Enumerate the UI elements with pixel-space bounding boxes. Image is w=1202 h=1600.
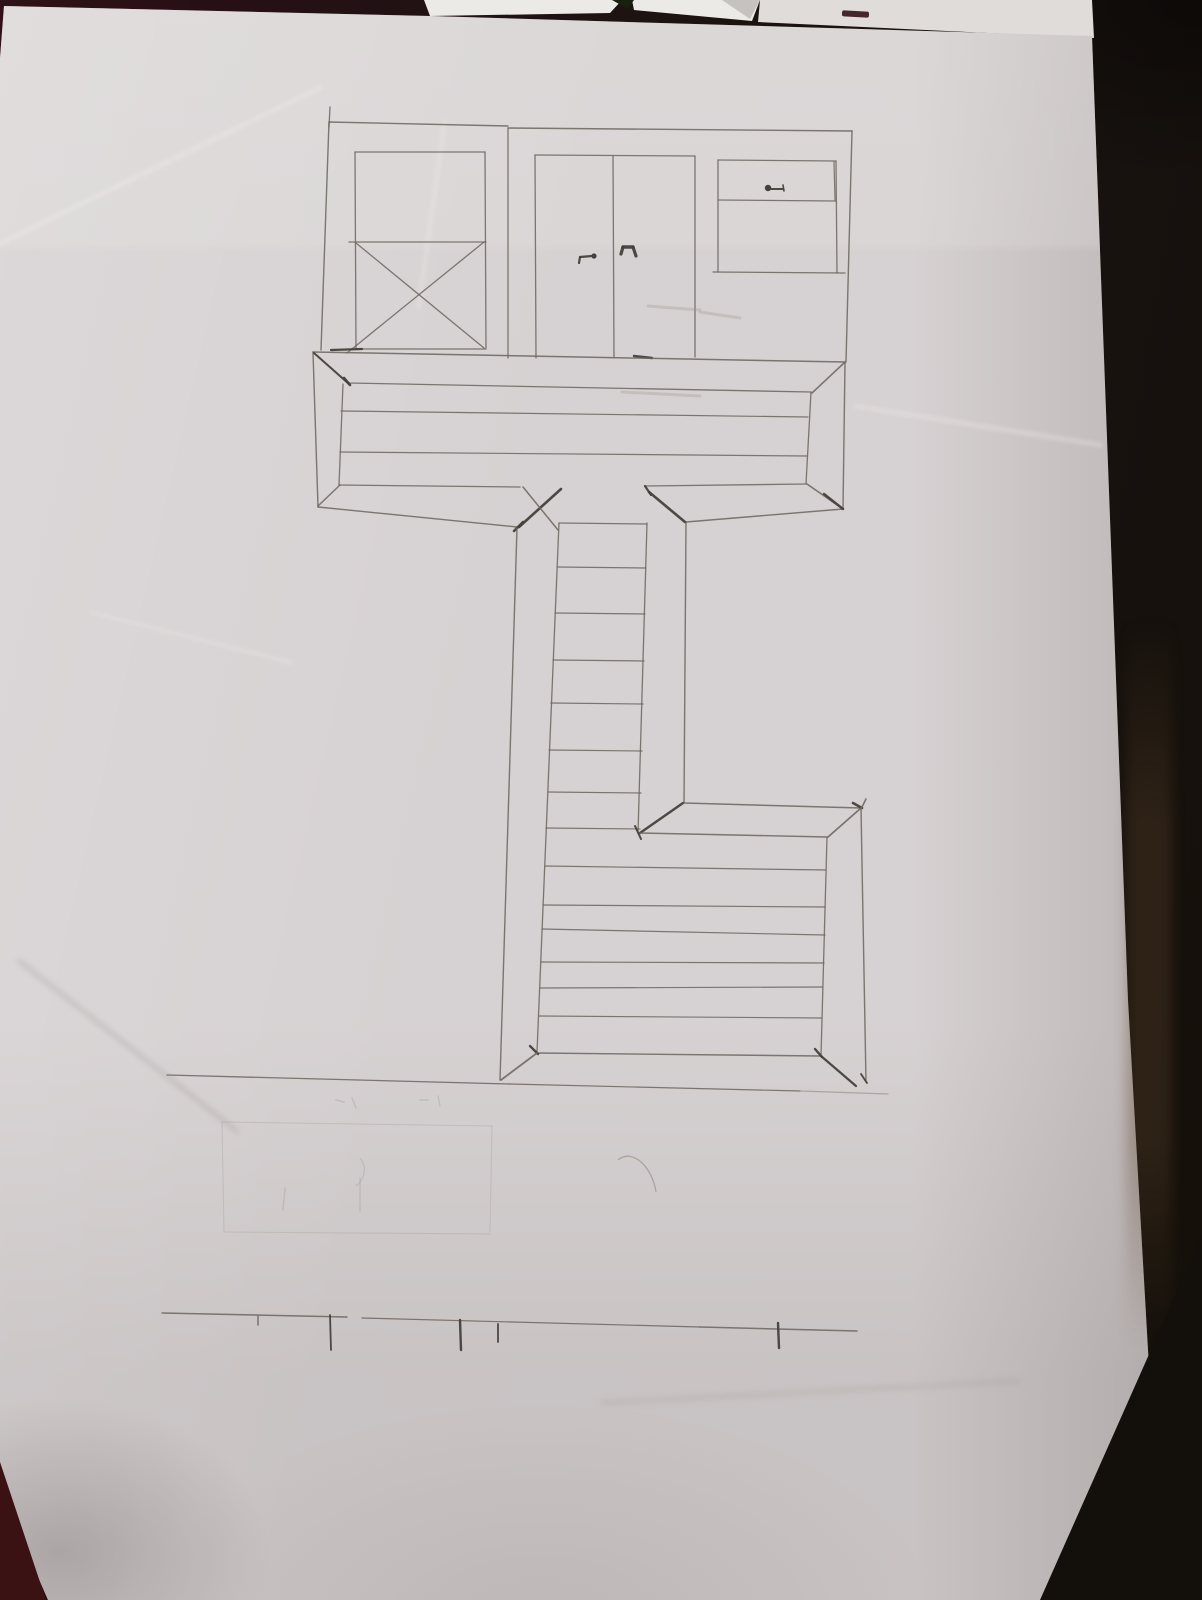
pencil-stroke xyxy=(783,185,784,191)
pencil-dot xyxy=(765,185,771,191)
pencil-stroke xyxy=(321,122,329,350)
pencil-stroke xyxy=(622,392,700,396)
photo-scene xyxy=(0,0,1202,1600)
pencil-stroke xyxy=(510,1084,800,1091)
pencil-stroke xyxy=(555,613,645,614)
pencil-stroke xyxy=(542,929,825,935)
pencil-stroke xyxy=(330,1315,331,1350)
pencil-stroke xyxy=(648,306,700,310)
pencil-stroke xyxy=(535,155,695,156)
pencil-stroke xyxy=(828,808,861,837)
pencil-stroke xyxy=(821,1056,856,1086)
pencil-stroke xyxy=(490,1126,492,1232)
pencil-stroke xyxy=(645,486,651,495)
pencil-stroke xyxy=(362,1318,700,1327)
pencil-stroke xyxy=(224,1232,490,1234)
pencil-stroke xyxy=(700,312,740,318)
pencil-stroke xyxy=(523,487,558,530)
pencil-stroke xyxy=(339,384,343,485)
pencil-stroke xyxy=(352,1098,356,1108)
pencil-sketch xyxy=(0,0,1202,1600)
pencil-stroke xyxy=(355,152,356,349)
pencil-stroke xyxy=(718,200,836,201)
pencil-stroke xyxy=(535,155,536,358)
pencil-stroke xyxy=(861,799,866,809)
pencil-stroke xyxy=(313,352,318,507)
pencil-stroke xyxy=(438,1096,440,1106)
pencil-stroke xyxy=(778,1323,779,1348)
pencil-stroke xyxy=(283,1188,285,1210)
pencil-stroke xyxy=(713,272,845,273)
pencil-stroke xyxy=(348,383,811,392)
pencil-stroke xyxy=(318,507,517,527)
pencil-stroke xyxy=(340,452,807,456)
pencil-stroke xyxy=(638,523,647,833)
pencil-stroke xyxy=(329,122,508,126)
pencil-stroke xyxy=(508,128,852,131)
pencil-stroke xyxy=(613,156,614,357)
pencil-stroke xyxy=(545,866,826,870)
pencil-stroke xyxy=(836,161,837,273)
pencil-stroke xyxy=(548,792,641,793)
pencil-stroke xyxy=(500,528,517,1080)
pencil-stroke xyxy=(559,523,647,524)
pencil-stroke xyxy=(485,152,486,348)
pencil-curve xyxy=(618,1156,656,1192)
pencil-stroke xyxy=(546,828,640,829)
pencil-stroke xyxy=(167,1075,510,1084)
pencil-stroke xyxy=(640,803,683,833)
pencil-stroke xyxy=(557,567,646,568)
pencil-stroke xyxy=(543,905,825,907)
pencil-stroke xyxy=(501,1053,537,1080)
pencil-stroke xyxy=(834,162,835,200)
pencil-stroke xyxy=(686,509,843,522)
pencil-stroke xyxy=(684,523,686,803)
pencil-stroke xyxy=(800,1091,888,1094)
pencil-stroke xyxy=(460,1320,461,1350)
pencil-stroke xyxy=(341,411,808,417)
pencil-stroke xyxy=(640,833,827,837)
pencil-stroke xyxy=(684,803,861,808)
pencil-dot xyxy=(591,253,596,258)
pencil-stroke xyxy=(331,349,362,350)
pencil-stroke xyxy=(843,362,845,509)
pencil-stroke xyxy=(162,1313,347,1317)
pencil-stroke xyxy=(549,750,642,751)
pencil-stroke xyxy=(551,703,643,704)
pencil-stroke xyxy=(824,494,843,509)
pencil-stroke xyxy=(812,363,844,393)
pencil-stroke xyxy=(580,256,592,257)
pencil-stroke xyxy=(646,484,806,486)
pencil-stroke xyxy=(537,1053,821,1056)
pencil-stroke xyxy=(347,242,484,353)
pencil-stroke xyxy=(553,660,644,661)
pencil-stroke xyxy=(222,1122,492,1126)
pencil-curve xyxy=(356,1158,364,1186)
pencil-stroke xyxy=(356,243,484,348)
pencil-stroke xyxy=(806,392,811,484)
pencil-stroke xyxy=(846,131,852,362)
pencil-stroke xyxy=(318,485,340,506)
pencil-stroke xyxy=(539,1016,822,1018)
pencil-stroke xyxy=(540,987,823,988)
pencil-stroke xyxy=(718,160,836,161)
pencil-stroke xyxy=(861,808,866,1082)
pencil-stroke xyxy=(541,962,824,963)
pencil-stroke xyxy=(313,352,845,362)
pencil-stroke xyxy=(537,523,559,1052)
pencil-stroke xyxy=(633,247,636,256)
pencil-stroke xyxy=(649,492,685,522)
pencil-stroke xyxy=(336,1100,344,1102)
pencil-stroke xyxy=(339,485,520,487)
pencil-stroke xyxy=(222,1122,224,1232)
